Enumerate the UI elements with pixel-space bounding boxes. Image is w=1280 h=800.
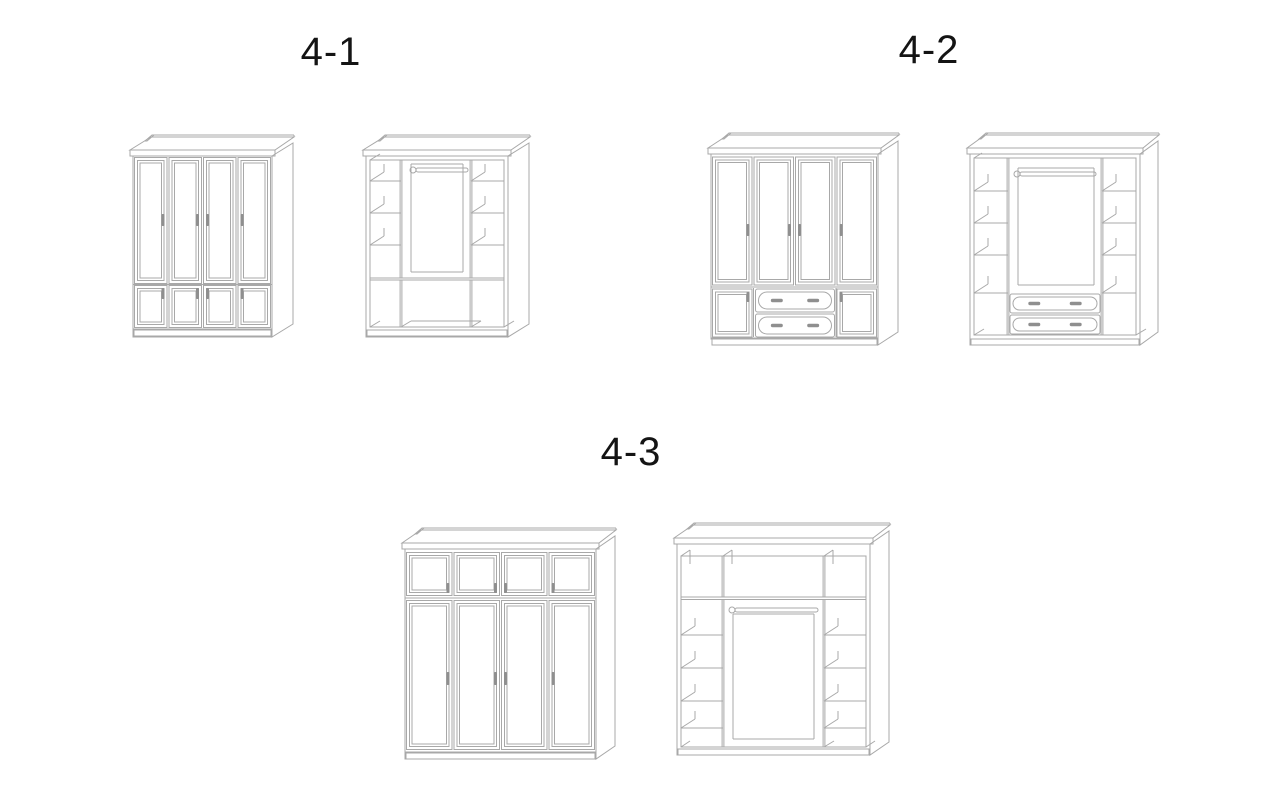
wardrobe-catalog-page: 4-1 4-2 4-3 (0, 0, 1280, 800)
wardrobe-4-1-closed-figure (122, 130, 300, 344)
group-label-4-1: 4-1 (271, 30, 391, 75)
wardrobe-4-1-open-drawing (358, 130, 536, 344)
wardrobe-4-2-closed-figure (702, 128, 902, 350)
group-label-4-3: 4-3 (571, 430, 691, 475)
wardrobe-4-2-closed-drawing (702, 128, 902, 350)
wardrobe-4-3-closed-drawing (394, 526, 620, 772)
wardrobe-4-3-open-drawing (666, 522, 894, 774)
wardrobe-4-2-open-figure (962, 128, 1162, 350)
wardrobe-4-2-open-drawing (962, 128, 1162, 350)
wardrobe-4-3-open-figure (666, 522, 894, 774)
wardrobe-4-1-closed-drawing (122, 130, 300, 344)
wardrobe-4-1-open-figure (358, 130, 536, 344)
group-label-4-2: 4-2 (869, 28, 989, 73)
wardrobe-4-3-closed-figure (394, 526, 620, 772)
